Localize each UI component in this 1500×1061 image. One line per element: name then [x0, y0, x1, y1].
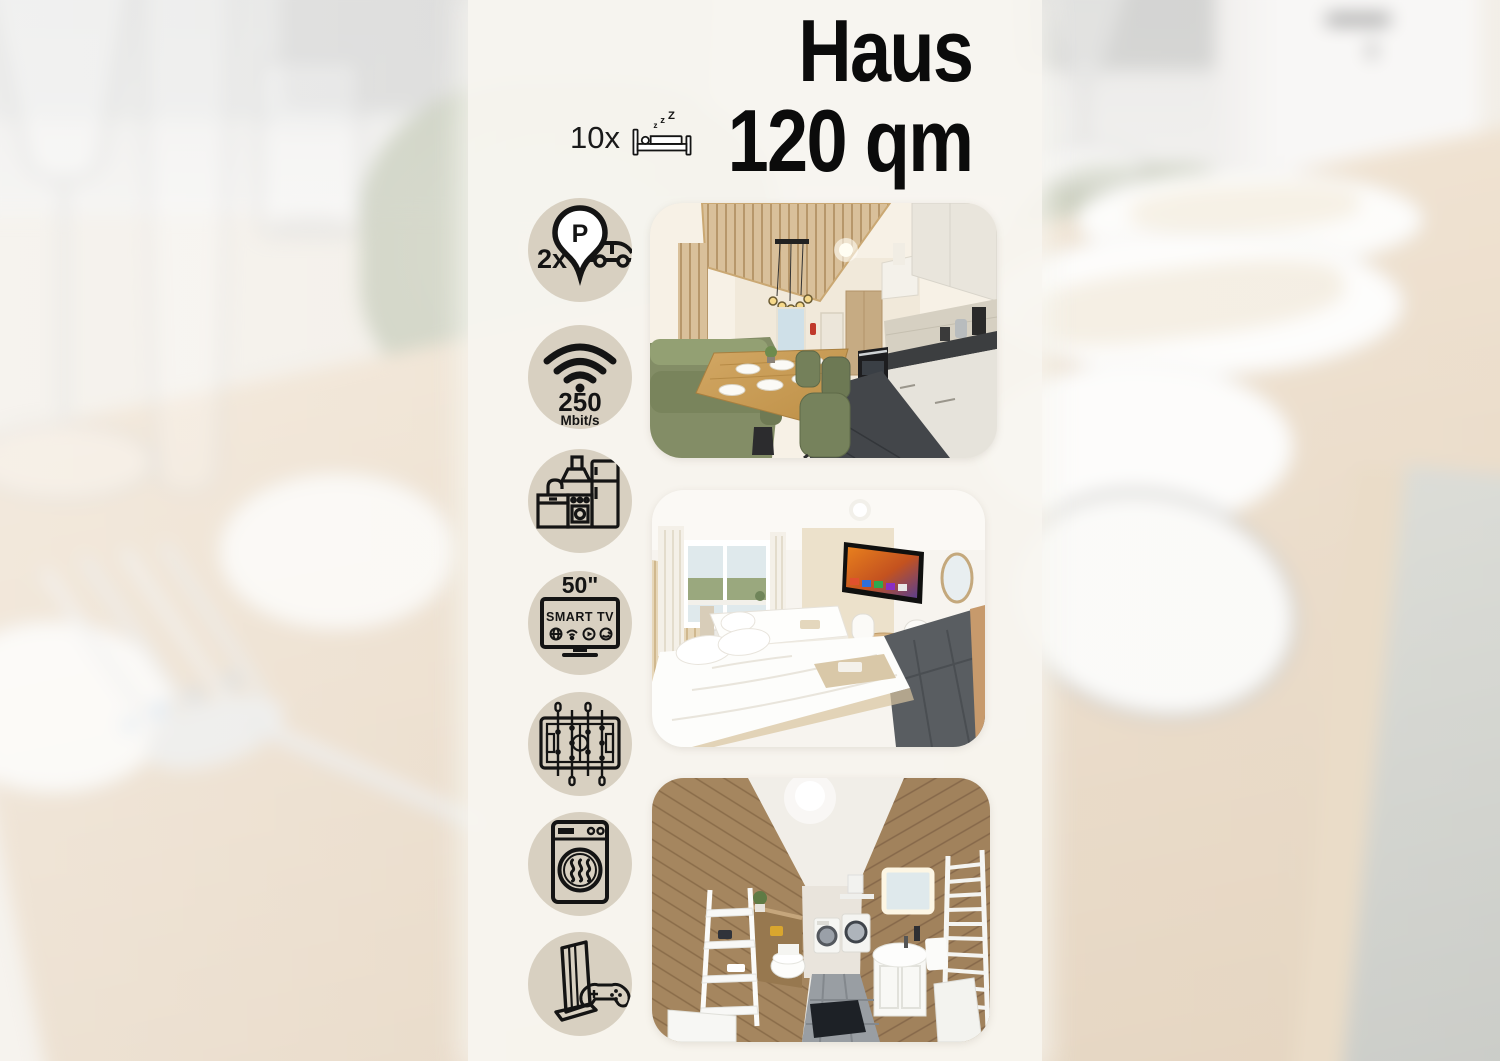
amenity-laundry — [528, 812, 632, 916]
amenity-wifi: 250 Mbit/s — [528, 325, 632, 429]
bedroom-illustration — [652, 490, 985, 747]
sleeping-capacity: 10x z z Z — [570, 110, 695, 160]
attic-bathroom-photo — [652, 778, 990, 1042]
parking-pin-car-icon: 2x P — [528, 198, 632, 302]
title-line-1: Haus — [727, 6, 972, 96]
svg-text:z: z — [653, 120, 657, 130]
foosball-table-icon — [528, 692, 632, 796]
svg-text:z: z — [660, 115, 665, 126]
capacity-count: 10x — [570, 122, 620, 160]
twin-bedroom-photo — [652, 490, 985, 747]
svg-text:P: P — [572, 220, 589, 248]
svg-text:Mbit/s: Mbit/s — [561, 413, 600, 428]
amenity-kitchen — [528, 449, 632, 553]
listing-poster: Haus 120 qm 10x z z Z — [0, 0, 1500, 1061]
svg-text:50": 50" — [562, 572, 599, 598]
game-console-icon — [528, 932, 632, 1036]
amenity-parking: 2x P — [528, 198, 632, 302]
smart-tv-icon: 50" SMART TV — [528, 571, 632, 675]
amenity-foosball — [528, 692, 632, 796]
content-panel: Haus 120 qm 10x z z Z — [468, 0, 1042, 1061]
kitchen-icon — [528, 449, 632, 553]
amenity-smart-tv: 50" SMART TV — [528, 571, 632, 675]
bed-sleep-icon: z z Z — [629, 110, 695, 160]
dining-kitchen-illustration — [650, 203, 997, 458]
svg-text:Z: Z — [668, 110, 675, 122]
poster-title: Haus 120 qm — [681, 6, 972, 186]
washer-dryer-icon — [528, 812, 632, 916]
dining-kitchen-photo — [650, 203, 997, 458]
amenity-gaming — [528, 932, 632, 1036]
wifi-icon: 250 Mbit/s — [528, 325, 632, 429]
title-line-2: 120 qm — [727, 96, 972, 186]
bathroom-illustration — [652, 778, 990, 1042]
svg-text:SMART TV: SMART TV — [546, 610, 614, 624]
